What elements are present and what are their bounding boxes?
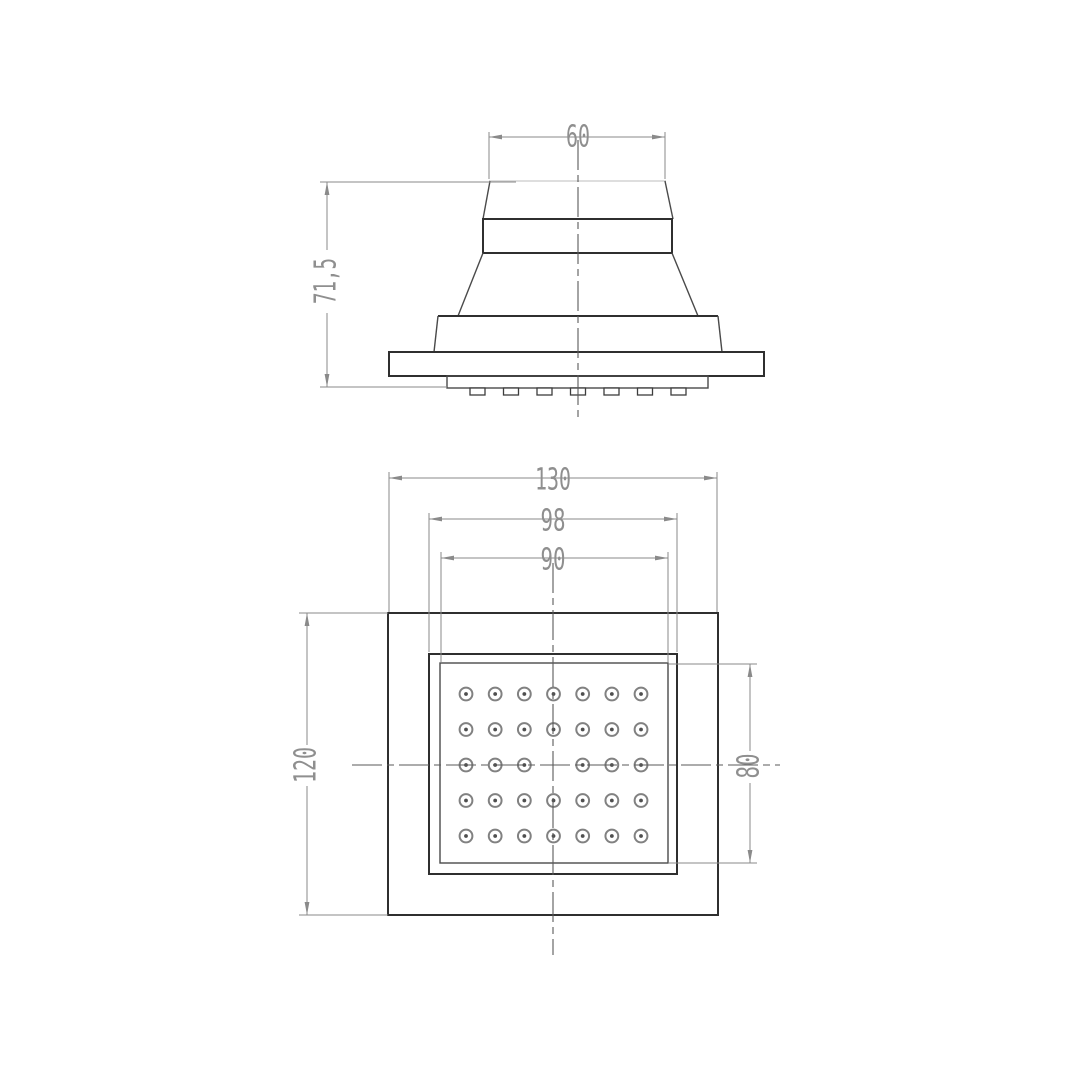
- collar-left-side: [434, 316, 438, 352]
- nozzle-stub: [537, 388, 552, 395]
- nozzle-hole-center: [522, 692, 526, 696]
- dimension-height: 71,5: [309, 182, 517, 387]
- arrowhead: [655, 556, 668, 561]
- nozzle-hole-center: [522, 799, 526, 803]
- cone-left-side: [458, 253, 483, 316]
- nozzle-hole-center: [610, 834, 614, 838]
- nozzle-hole-center: [522, 834, 526, 838]
- nozzle-hole-center: [639, 834, 643, 838]
- nozzle-hole-center: [610, 799, 614, 803]
- nozzle-stub: [504, 388, 519, 395]
- arrowhead: [664, 517, 677, 522]
- dim-label-98: 98: [541, 504, 566, 539]
- nozzle-hole-center: [522, 728, 526, 732]
- nozzle-hole-center: [639, 728, 643, 732]
- technical-drawing-page: 60 71,5 130: [0, 0, 1080, 1080]
- nozzle-hole-center: [610, 728, 614, 732]
- arrowhead: [748, 850, 753, 863]
- nozzle-hole-center: [581, 799, 585, 803]
- dimension-nozzle-field-width: 90: [441, 543, 668, 663]
- nozzle-hole-center: [639, 799, 643, 803]
- nozzle-hole-center: [493, 834, 497, 838]
- bottom-plan-view: 130 98 90 120: [289, 463, 781, 956]
- nozzle-stub: [604, 388, 619, 395]
- dim-label-120: 120: [289, 747, 324, 783]
- dim-label-90: 90: [541, 543, 566, 578]
- nozzle-hole-center: [522, 763, 526, 767]
- nozzle-stub: [671, 388, 686, 395]
- arrowhead: [441, 556, 454, 561]
- arrowhead: [429, 517, 442, 522]
- arrowhead: [652, 135, 665, 140]
- nozzle-hole-center: [464, 834, 468, 838]
- nozzle-hole-center: [493, 799, 497, 803]
- nozzle-hole-center: [581, 692, 585, 696]
- neck-right-side: [665, 181, 673, 219]
- dim-label-130: 130: [535, 463, 571, 498]
- dim-label-60: 60: [566, 120, 590, 155]
- arrowhead: [389, 476, 402, 481]
- dimension-top-width: 60: [489, 120, 665, 180]
- nozzle-hole-center: [493, 728, 497, 732]
- collar-right-side: [718, 316, 722, 352]
- dim-label-80: 80: [732, 754, 767, 779]
- dimension-outer-height: 120: [289, 613, 389, 915]
- nozzle-hole-center: [493, 692, 497, 696]
- arrowhead: [305, 613, 310, 626]
- nozzle-hole-center: [610, 692, 614, 696]
- arrowhead: [325, 374, 330, 387]
- shower-head-technical-drawing: 60 71,5 130: [0, 0, 1080, 1080]
- nozzle-hole-center: [639, 692, 643, 696]
- nozzle-hole-center: [581, 834, 585, 838]
- nozzle-hole-center: [464, 799, 468, 803]
- arrowhead: [305, 902, 310, 915]
- nozzle-hole-center: [581, 728, 585, 732]
- arrowhead: [704, 476, 717, 481]
- nozzle-hole-center: [464, 728, 468, 732]
- side-elevation-view: 60 71,5: [309, 120, 765, 418]
- nozzle-stub: [470, 388, 485, 395]
- arrowhead: [325, 182, 330, 195]
- dim-label-71-5: 71,5: [309, 258, 344, 304]
- arrowhead: [489, 135, 502, 140]
- nozzle-stub: [638, 388, 653, 395]
- cone-right-side: [672, 253, 698, 316]
- neck-left-side: [483, 181, 490, 219]
- flange: [389, 352, 764, 376]
- arrowhead: [748, 664, 753, 677]
- nozzle-hole-center: [464, 692, 468, 696]
